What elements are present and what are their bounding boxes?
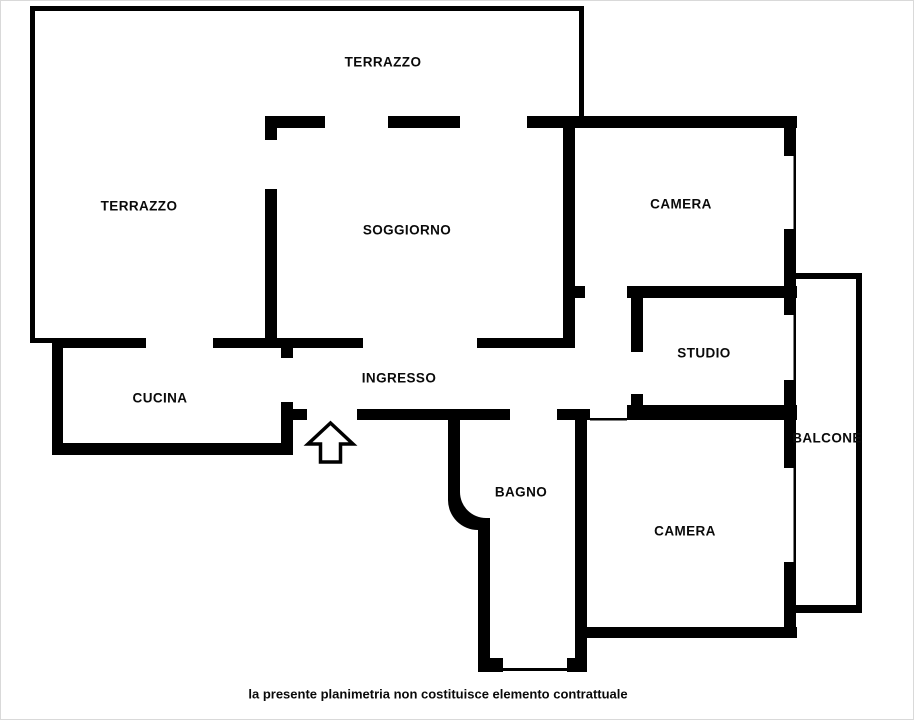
room-label-terrazzo-top: TERRAZZO	[345, 55, 422, 70]
room-label-camera-2: CAMERA	[654, 524, 716, 539]
room-label-cucina: CUCINA	[133, 391, 188, 406]
room-label-terrazzo-side: TERRAZZO	[101, 199, 178, 214]
entrance-arrow-icon	[308, 423, 353, 462]
room-label-balcone: BALCONE	[792, 431, 862, 446]
terrace-walls	[30, 6, 584, 343]
disclaimer-text: la presente planimetria non costituisce …	[248, 687, 627, 702]
floor-plan: TERRAZZO TERRAZZO SOGGIORNO CAMERA STUDI…	[0, 0, 914, 720]
room-label-studio: STUDIO	[677, 346, 730, 361]
room-label-soggiorno: SOGGIORNO	[363, 223, 451, 238]
room-label-ingresso: INGRESSO	[362, 371, 436, 386]
floor-plan-drawing	[0, 0, 914, 720]
room-label-bagno: BAGNO	[495, 485, 547, 500]
room-label-camera-1: CAMERA	[650, 197, 712, 212]
